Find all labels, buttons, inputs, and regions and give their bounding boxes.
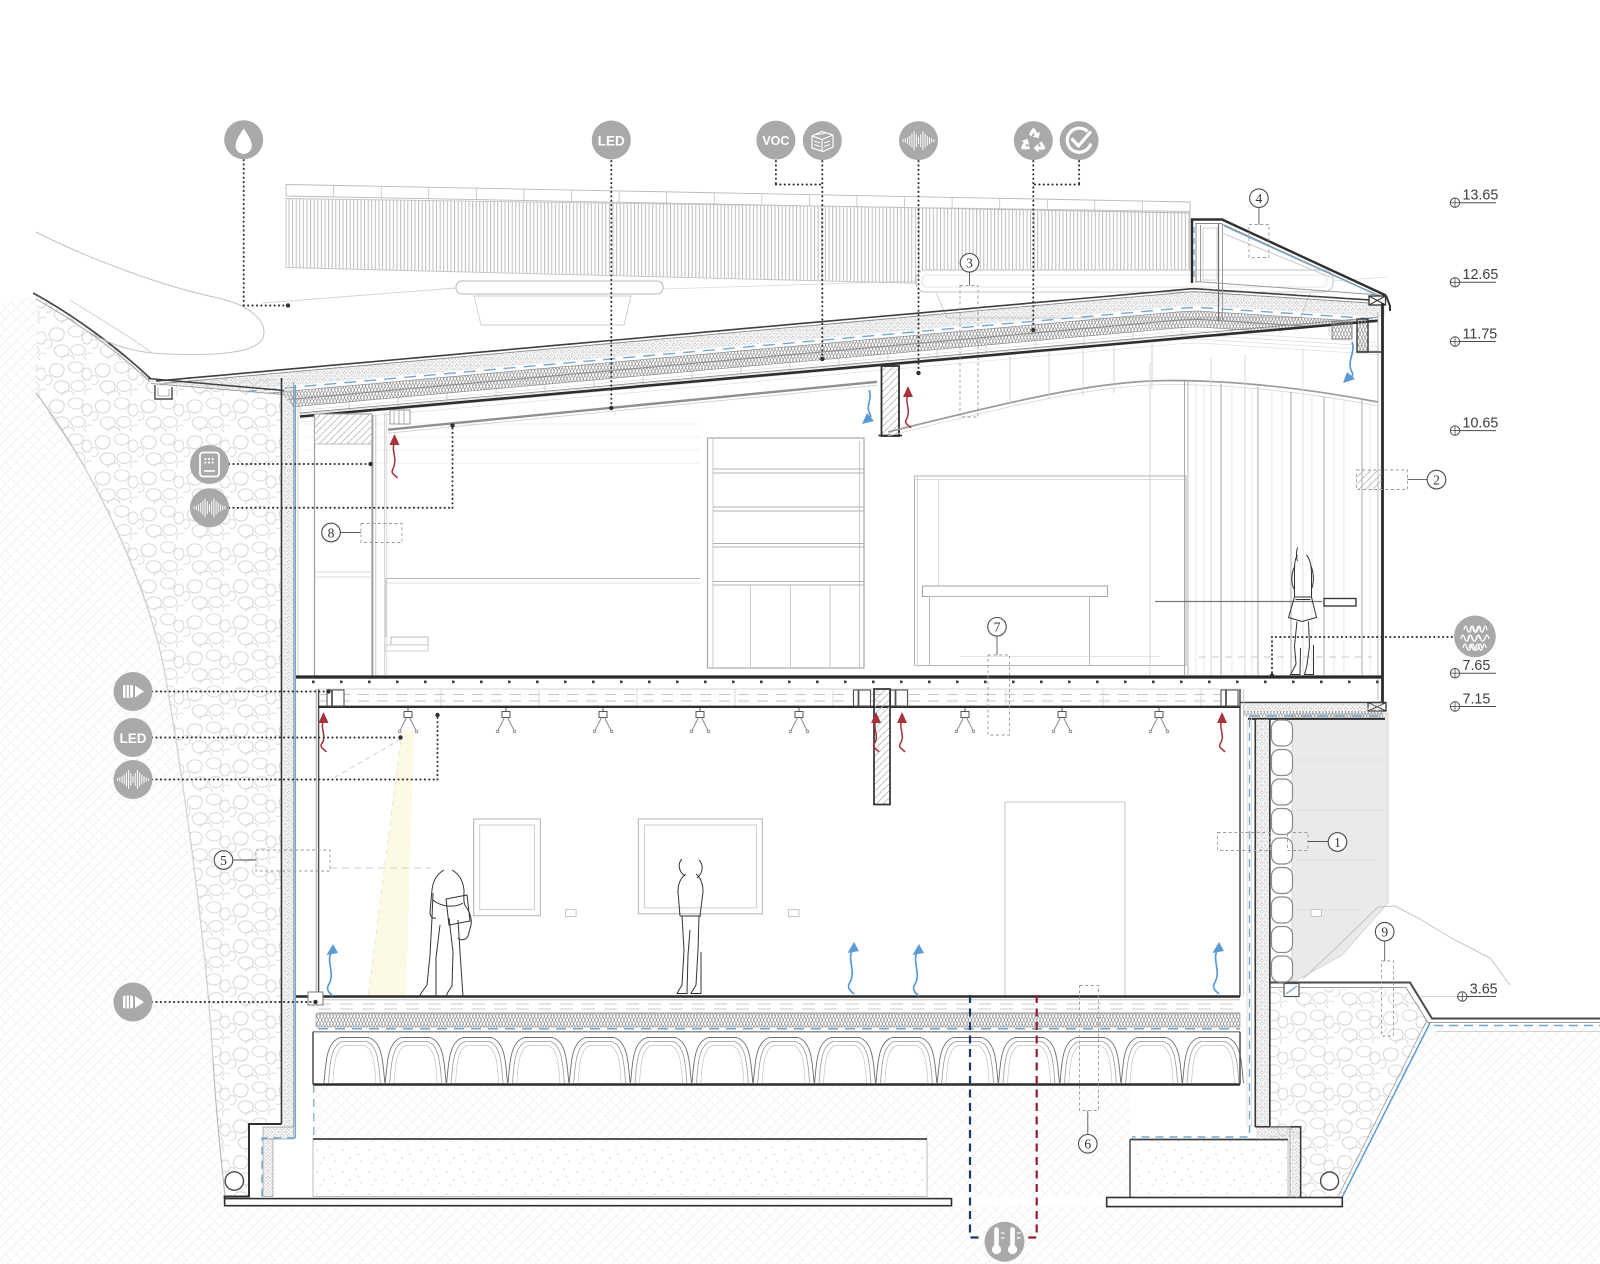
svg-text:10.65: 10.65 (1463, 415, 1499, 431)
svg-text:13.65: 13.65 (1463, 188, 1499, 204)
svg-text:11.75: 11.75 (1463, 326, 1498, 342)
svg-text:VOC: VOC (762, 134, 789, 148)
svg-text:3.65: 3.65 (1470, 981, 1498, 997)
svg-text:LED: LED (120, 731, 147, 746)
svg-text:4: 4 (1256, 191, 1263, 206)
svg-text:12.65: 12.65 (1463, 267, 1499, 283)
svg-text:5: 5 (220, 853, 227, 868)
svg-text:8: 8 (328, 525, 335, 540)
svg-text:6: 6 (1084, 1137, 1091, 1152)
svg-text:2: 2 (1433, 472, 1440, 487)
svg-text:7.65: 7.65 (1463, 658, 1491, 674)
svg-text:7.15: 7.15 (1463, 691, 1491, 707)
svg-text:LED: LED (598, 133, 625, 148)
svg-text:7: 7 (994, 620, 1001, 635)
svg-text:1: 1 (1334, 835, 1341, 850)
svg-text:3: 3 (966, 256, 973, 271)
svg-text:9: 9 (1381, 925, 1388, 940)
